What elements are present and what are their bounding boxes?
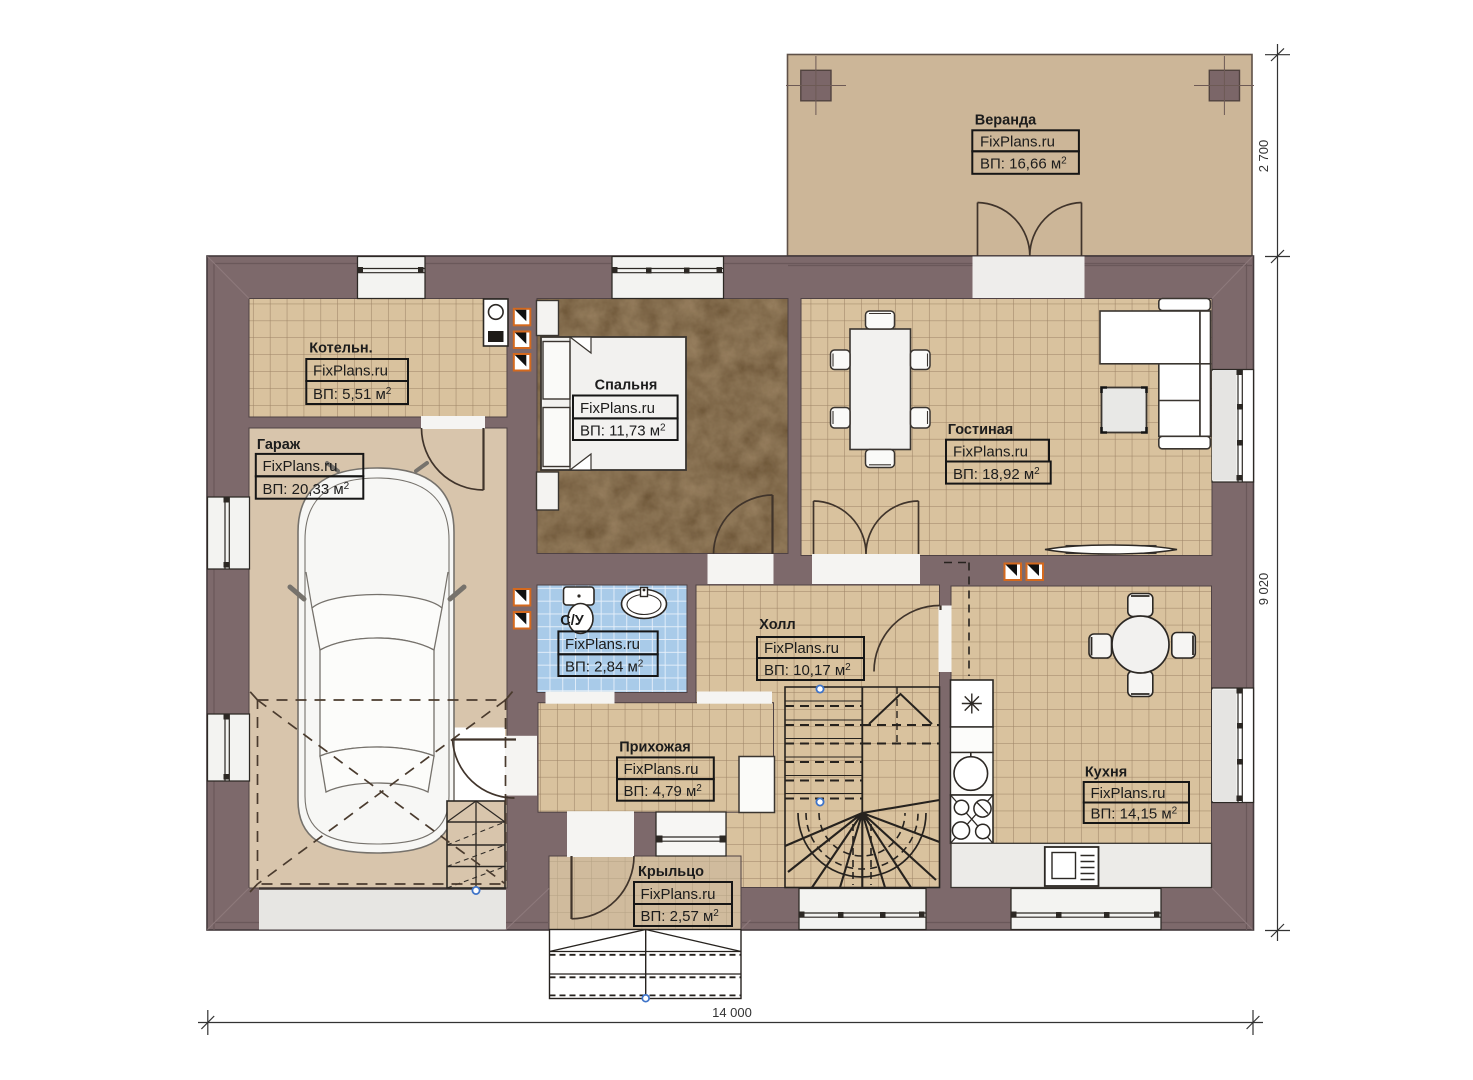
svg-text:ВП: 2,84 м2: ВП: 2,84 м2 [565,658,644,675]
svg-text:Прихожая: Прихожая [619,740,691,756]
svg-text:ВП: 5,51 м2: ВП: 5,51 м2 [313,386,392,403]
svg-text:9 020: 9 020 [1256,573,1271,606]
svg-text:ВП: 2,57 м2: ВП: 2,57 м2 [641,908,720,925]
svg-text:Крыльцо: Крыльцо [638,864,704,880]
svg-text:FixPlans.ru: FixPlans.ru [313,363,388,380]
svg-text:ВП: 4,79 м2: ВП: 4,79 м2 [624,783,703,800]
svg-text:FixPlans.ru: FixPlans.ru [641,886,716,903]
svg-text:Кухня: Кухня [1085,765,1127,781]
svg-text:ВП: 10,17 м2: ВП: 10,17 м2 [764,662,851,679]
svg-text:14 000: 14 000 [712,1005,752,1020]
svg-text:FixPlans.ru: FixPlans.ru [764,640,839,657]
svg-text:FixPlans.ru: FixPlans.ru [1091,785,1166,802]
svg-text:Спальня: Спальня [595,378,658,394]
svg-text:2 700: 2 700 [1256,140,1271,173]
svg-text:Гостиная: Гостиная [948,422,1014,438]
svg-text:FixPlans.ru: FixPlans.ru [953,444,1028,461]
svg-text:Веранда: Веранда [975,113,1037,129]
svg-text:FixPlans.ru: FixPlans.ru [980,133,1055,150]
svg-text:Котельн.: Котельн. [309,341,372,357]
svg-text:Холл: Холл [759,617,795,633]
svg-text:ВП: 14,15 м2: ВП: 14,15 м2 [1091,806,1178,823]
svg-text:FixPlans.ru: FixPlans.ru [580,400,655,417]
svg-text:ВП: 11,73 м2: ВП: 11,73 м2 [580,422,666,439]
svg-text:ВП: 20,33 м2: ВП: 20,33 м2 [263,481,350,498]
svg-text:ВП: 16,66 м2: ВП: 16,66 м2 [980,156,1067,173]
svg-text:FixPlans.ru: FixPlans.ru [565,636,640,653]
svg-text:FixPlans.ru: FixPlans.ru [624,761,699,778]
svg-text:ВП: 18,92 м2: ВП: 18,92 м2 [953,466,1040,483]
svg-text:С/У: С/У [560,613,585,629]
svg-text:FixPlans.ru: FixPlans.ru [263,458,338,475]
svg-text:Гараж: Гараж [257,437,301,453]
